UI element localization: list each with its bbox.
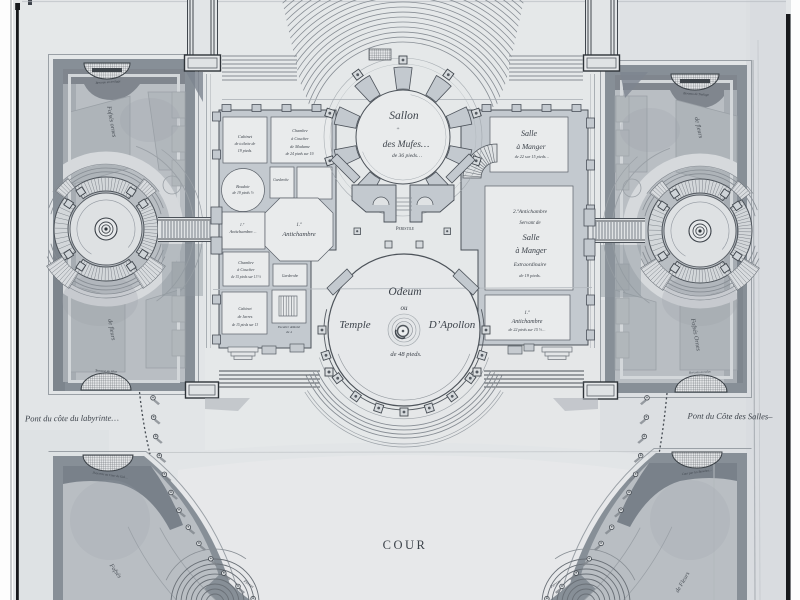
svg-text:Chambre: Chambre — [238, 260, 254, 265]
svg-text:de 22 sur 15 pieds…: de 22 sur 15 pieds… — [515, 154, 550, 159]
svg-text:COUR: COUR — [383, 538, 428, 552]
svg-text:Antichambre: Antichambre — [281, 231, 315, 238]
svg-text:Garderobe: Garderobe — [273, 178, 289, 182]
svg-text:Salle: Salle — [521, 129, 537, 138]
svg-text:Cabinet: Cabinet — [238, 134, 253, 139]
svg-text:de 15 pieds sur 13 ½: de 15 pieds sur 13 ½ — [231, 275, 261, 279]
svg-text:Pont du côte du labyrinte…: Pont du côte du labyrinte… — [24, 413, 119, 424]
svg-text:2.ºAntichambre: 2.ºAntichambre — [513, 209, 548, 215]
svg-text:de 4: de 4 — [286, 330, 292, 334]
svg-text:Extraordinaire: Extraordinaire — [513, 262, 547, 268]
svg-text:de Madame: de Madame — [290, 144, 310, 149]
svg-text:de 24 pieds sur 19.: de 24 pieds sur 19. — [286, 152, 315, 156]
svg-text:ou: ou — [401, 304, 409, 312]
svg-text:à Manger: à Manger — [515, 246, 547, 255]
svg-text:Salle: Salle — [523, 232, 540, 242]
svg-text:19 pieds.: 19 pieds. — [238, 148, 252, 153]
svg-text:à Coucher: à Coucher — [237, 267, 255, 272]
svg-text:Temple: Temple — [339, 319, 370, 331]
svg-text:+: + — [396, 126, 400, 132]
svg-text:de 15 pieds sur 13: de 15 pieds sur 13 — [232, 323, 259, 327]
svg-text:de 19 pieds ½: de 19 pieds ½ — [232, 191, 253, 195]
svg-text:Pont du Côte des Salles–: Pont du Côte des Salles– — [686, 411, 773, 422]
svg-text:à Coucher: à Coucher — [291, 136, 309, 141]
svg-text:de 19 pieds.: de 19 pieds. — [519, 273, 541, 278]
svg-text:Antichambre…: Antichambre… — [228, 229, 256, 234]
svg-text:de Jarres: de Jarres — [238, 314, 253, 319]
svg-text:des Mufes…: des Mufes… — [383, 139, 430, 150]
svg-text:de 22 pieds sur 15 ½…: de 22 pieds sur 15 ½… — [509, 327, 546, 332]
svg-text:de 36 pieds…: de 36 pieds… — [392, 153, 422, 159]
svg-text:de toilette de: de toilette de — [235, 141, 256, 146]
svg-text:Sallon: Sallon — [389, 110, 419, 122]
svg-text:Servant de: Servant de — [519, 221, 541, 226]
svg-text:Garderobe: Garderobe — [282, 274, 299, 278]
svg-text:de 48 pieds.: de 48 pieds. — [390, 351, 422, 358]
svg-text:Chambre: Chambre — [292, 128, 308, 133]
svg-text:1.º: 1.º — [296, 222, 302, 228]
svg-text:à Manger: à Manger — [516, 142, 545, 151]
svg-text:Boudoir: Boudoir — [236, 184, 250, 189]
svg-text:Antichambre: Antichambre — [511, 319, 543, 325]
svg-text:1.º: 1.º — [524, 310, 530, 316]
svg-text:Cabinet: Cabinet — [238, 306, 252, 311]
svg-text:Escalier deRobé: Escalier deRobé — [277, 325, 301, 329]
svg-text:D’Apollon: D’Apollon — [428, 319, 476, 331]
svg-text:Odeum: Odeum — [388, 286, 421, 298]
